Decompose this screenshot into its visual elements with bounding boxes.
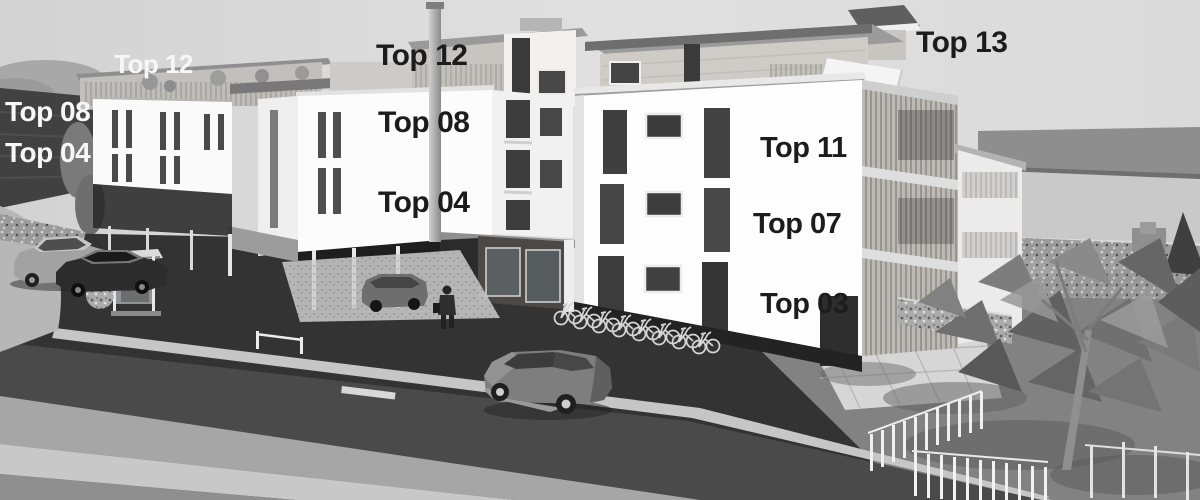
slat-balcony-recess [898, 110, 954, 160]
pedestrian-bag [433, 303, 440, 313]
storefront-column [564, 240, 574, 312]
pedestrian-leg [441, 315, 446, 329]
pedestrian-body [438, 295, 456, 315]
slat-balcony-recess [898, 198, 954, 244]
piloti-column [228, 234, 232, 276]
pedestrian-leg [449, 315, 454, 328]
storefront-glass [526, 250, 560, 302]
penthouse-window [538, 70, 566, 94]
terrace-plant [295, 66, 309, 80]
terrace-plant [210, 70, 226, 86]
minivan [362, 274, 428, 312]
right-facade-left-shade [575, 95, 584, 303]
storefront-glass [486, 248, 520, 296]
stairwell-slit [270, 110, 278, 228]
scene-svg [0, 0, 1200, 500]
rear-balcony-railing [962, 232, 1018, 258]
piloti-column [190, 230, 193, 270]
penthouse-window-tall [512, 38, 530, 100]
gray-hatchback [484, 350, 612, 420]
architectural-rendering: Top 12Top 08Top 04Top 12Top 08Top 04Top … [0, 0, 1200, 500]
top13-window [610, 62, 640, 84]
shelter-base [111, 311, 161, 316]
chimney-cap [426, 2, 444, 9]
terrace-plant [255, 69, 269, 83]
terrace-plant [142, 74, 158, 90]
pedestrian-head [443, 286, 452, 295]
center-facade [298, 90, 492, 252]
roof-box [520, 18, 562, 31]
terrace-plant [164, 80, 176, 92]
rear-balcony-railing [962, 172, 1018, 198]
chimney-pole [429, 6, 441, 242]
